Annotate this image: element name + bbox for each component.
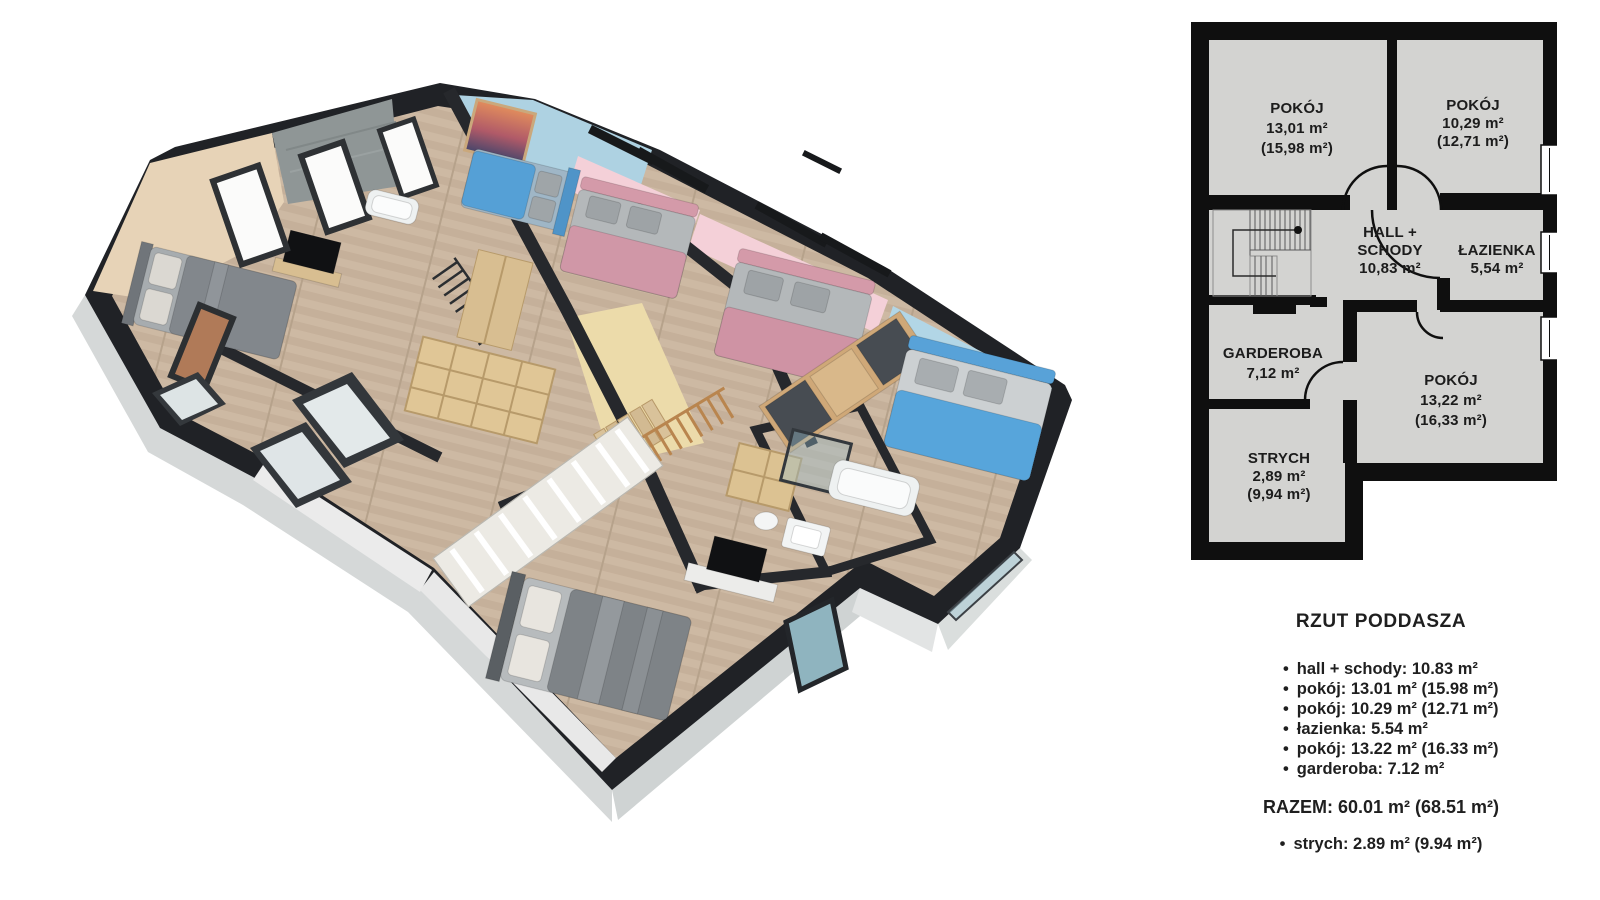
- floorplan-2d: POKÓJ 13,01 m² (15,98 m²) POKÓJ 10,29 m²…: [1191, 22, 1557, 560]
- svg-text:HALL +: HALL +: [1363, 224, 1417, 241]
- toilet: [754, 512, 778, 530]
- svg-text:(16,33 m²): (16,33 m²): [1415, 412, 1487, 429]
- legend-item: garderoba: 7.12 m²: [1283, 759, 1531, 779]
- room-label-pokoj-1: POKÓJ 13,01 m² (15,98 m²): [1261, 99, 1333, 157]
- legend-item: pokój: 13.22 m² (16.33 m²): [1283, 739, 1531, 759]
- legend-total: RAZEM: 60.01 m² (68.51 m²): [1231, 797, 1531, 818]
- svg-text:13,22 m²: 13,22 m²: [1420, 392, 1482, 409]
- legend-item: hall + schody: 10.83 m²: [1283, 659, 1531, 679]
- svg-text:7,12 m²: 7,12 m²: [1246, 365, 1299, 382]
- svg-text:10,83 m²: 10,83 m²: [1359, 260, 1421, 277]
- svg-text:13,01 m²: 13,01 m²: [1266, 120, 1328, 137]
- legend-item: pokój: 13.01 m² (15.98 m²): [1283, 679, 1531, 699]
- legend-item: łazienka: 5.54 m²: [1283, 719, 1531, 739]
- room-label-strych: STRYCH 2,89 m² (9,94 m²): [1247, 450, 1311, 503]
- svg-text:(15,98 m²): (15,98 m²): [1261, 140, 1333, 157]
- window-symbols: [1541, 145, 1557, 360]
- svg-text:POKÓJ: POKÓJ: [1446, 96, 1500, 114]
- legend-title: RZUT PODDASZA: [1231, 611, 1531, 633]
- page: POKÓJ 13,01 m² (15,98 m²) POKÓJ 10,29 m²…: [0, 0, 1600, 900]
- room-label-pokoj-3: POKÓJ 13,22 m² (16,33 m²): [1415, 371, 1487, 429]
- svg-text:10,29 m²: 10,29 m²: [1442, 115, 1504, 132]
- svg-text:2,89 m²: 2,89 m²: [1252, 468, 1305, 485]
- room-label-hall: HALL + SCHODY 10,83 m²: [1357, 224, 1422, 277]
- svg-text:STRYCH: STRYCH: [1248, 450, 1310, 467]
- svg-text:(12,71 m²): (12,71 m²): [1437, 133, 1509, 150]
- room-label-pokoj-2: POKÓJ 10,29 m² (12,71 m²): [1437, 96, 1509, 150]
- svg-text:ŁAZIENKA: ŁAZIENKA: [1458, 242, 1535, 259]
- legend-list: hall + schody: 10.83 m² pokój: 13.01 m² …: [1231, 659, 1531, 779]
- svg-text:POKÓJ: POKÓJ: [1424, 371, 1478, 389]
- svg-text:GARDEROBA: GARDEROBA: [1223, 345, 1323, 362]
- legend-item: pokój: 10.29 m² (12.71 m²): [1283, 699, 1531, 719]
- legend-block: RZUT PODDASZA hall + schody: 10.83 m² po…: [1231, 611, 1531, 854]
- svg-text:SCHODY: SCHODY: [1357, 242, 1422, 259]
- svg-text:POKÓJ: POKÓJ: [1270, 99, 1324, 117]
- svg-text:5,54 m²: 5,54 m²: [1470, 260, 1523, 277]
- legend-extra-item: strych: 2.89 m² (9.94 m²): [1231, 835, 1531, 854]
- svg-text:(9,94 m²): (9,94 m²): [1247, 486, 1311, 503]
